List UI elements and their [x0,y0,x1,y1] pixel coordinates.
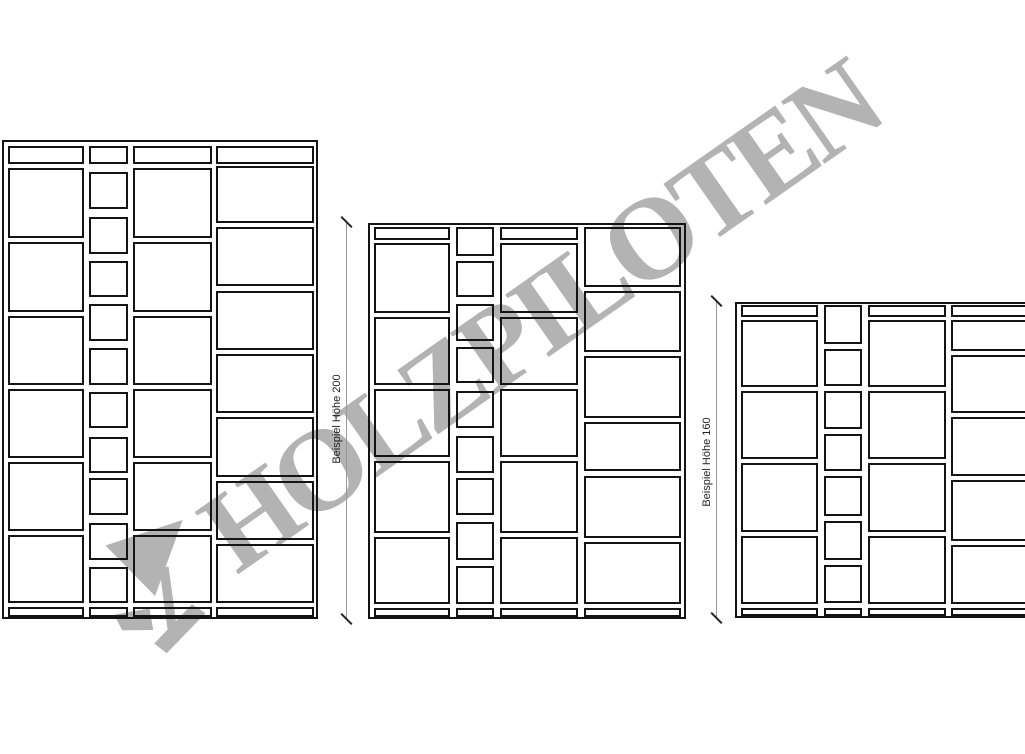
shelf-compartment [456,436,494,473]
shelf-compartment [824,521,862,560]
shelf-compartment [89,478,128,515]
shelf-compartment [951,480,1025,541]
shelf-compartment [456,261,494,297]
shelf-compartment [584,476,681,538]
shelf-compartment [456,522,494,560]
technical-drawing-canvas: HOLZPILOTEN Beispiel Höhe 200 Beispiel H… [0,0,1025,754]
shelf-compartment [133,146,212,164]
shelf-compartment [89,607,128,617]
shelf-compartment [584,356,681,418]
shelf-compartment [741,391,818,459]
shelf-compartment [216,227,314,286]
shelf-compartment [8,316,84,385]
shelf-compartment [824,608,862,616]
shelf-compartment [456,227,494,256]
shelf-compartment [951,320,1025,351]
shelf-compartment [89,392,128,428]
shelf-compartment [951,545,1025,604]
shelf-compartment [374,608,450,617]
shelf-compartment [951,608,1025,616]
shelf-compartment [456,391,494,428]
shelf-compartment [868,463,946,532]
shelf-compartment [8,462,84,531]
shelf-compartment [89,261,128,297]
shelf-compartment [456,478,494,515]
dimension-label: Beispiel Höhe 160 [699,402,715,522]
shelf-compartment [456,347,494,383]
shelf-compartment [868,320,946,387]
shelf-compartment [8,146,84,164]
shelf-compartment [500,608,578,617]
shelf-compartment [216,146,314,164]
shelf-compartment [951,355,1025,413]
technical-drawing-page: { "watermark": { "text": "HOLZPILOTEN", … [0,0,1025,754]
shelf-compartment [374,243,450,313]
shelf-compartment [374,537,450,604]
shelf-compartment [584,608,681,617]
shelf-compartment [584,422,681,471]
shelf-compartment [500,227,578,240]
shelf-compartment [824,391,862,429]
shelf-compartment [500,317,578,385]
shelf-compartment [741,536,818,604]
shelf-compartment [133,535,212,603]
shelf-compartment [824,565,862,603]
shelf-compartment [868,391,946,459]
dimension-line [716,301,717,618]
shelf-compartment [216,607,314,617]
shelf-compartment [374,317,450,385]
shelf-compartment [216,544,314,603]
shelf-compartment [456,608,494,617]
shelf-compartment [374,389,450,457]
shelf-compartment [741,320,818,387]
shelf-compartment [824,434,862,471]
shelf-compartment [89,172,128,209]
shelf-compartment [951,305,1025,317]
shelf-compartment [133,316,212,385]
shelf-compartment [216,417,314,477]
shelf-compartment [133,242,212,312]
shelf-compartment [584,227,681,287]
shelf-compartment [8,242,84,312]
shelf-compartment [741,463,818,532]
shelf-compartment [868,608,946,616]
shelf-compartment [89,146,128,164]
shelf-compartment [500,537,578,604]
shelf-compartment [868,536,946,604]
shelf-compartment [216,291,314,350]
shelf-compartment [456,566,494,604]
shelf-compartment [89,217,128,254]
shelf-compartment [584,291,681,352]
shelf-compartment [824,349,862,386]
shelf-compartment [133,607,212,617]
shelf-compartment [374,461,450,533]
shelf-compartment [824,305,862,344]
shelf-compartment [741,608,818,616]
shelf-compartment [89,304,128,341]
shelf-compartment [216,166,314,223]
dimension-line [346,222,347,619]
shelf-compartment [500,243,578,313]
shelf-compartment [8,607,84,617]
shelf-compartment [868,305,946,317]
shelf-compartment [89,567,128,603]
shelf-compartment [456,304,494,341]
shelf-compartment [500,461,578,533]
shelf-compartment [133,389,212,458]
shelf-compartment [89,348,128,385]
shelf-compartment [741,305,818,317]
shelf-compartment [133,168,212,238]
shelf-compartment [216,354,314,413]
shelf-compartment [133,462,212,531]
shelf-compartment [824,476,862,516]
shelf-compartment [8,168,84,238]
shelf-compartment [8,535,84,603]
dimension-label: Beispiel Höhe 200 [329,359,345,479]
shelf-compartment [951,417,1025,476]
shelf-compartment [216,481,314,540]
shelf-compartment [374,227,450,240]
shelf-compartment [500,389,578,457]
shelf-compartment [8,389,84,458]
shelf-compartment [89,437,128,473]
shelf-compartment [89,523,128,560]
shelf-compartment [584,542,681,604]
